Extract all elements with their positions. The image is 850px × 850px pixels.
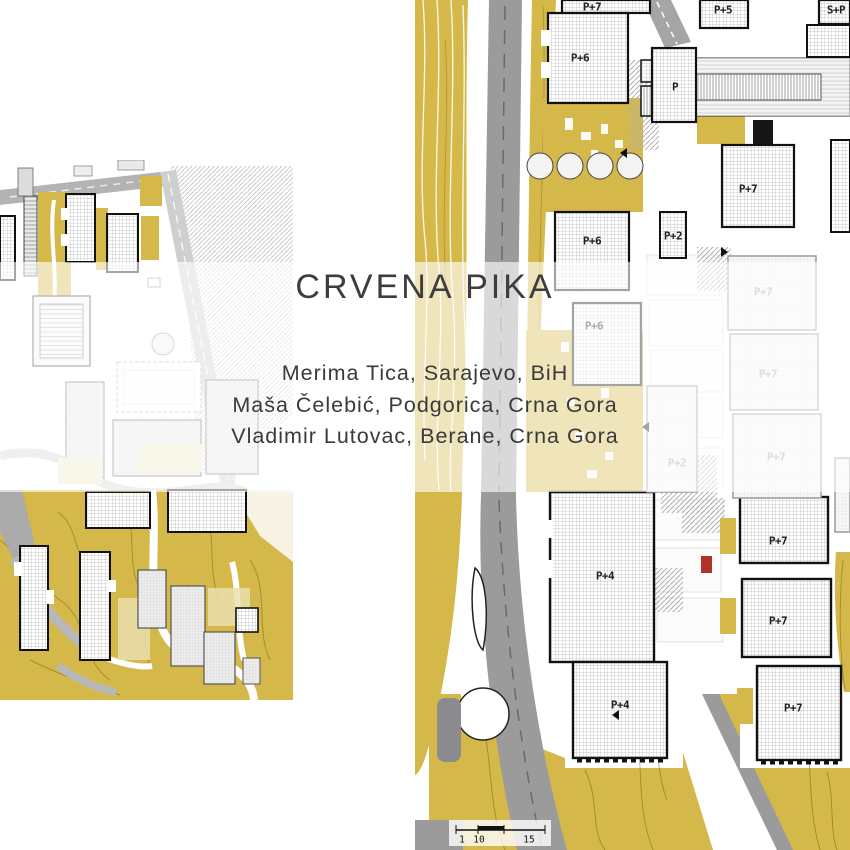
competition-board: P+7P+6PP+5S+PP+7P+2P+6P+6P+7P+7P+7P+2P+4… bbox=[0, 0, 850, 850]
project-title: CRVENA PIKA bbox=[0, 268, 850, 307]
author-line: Maša Čelebić, Podgorica, Crna Gora bbox=[0, 390, 850, 422]
red-dot-marker bbox=[701, 556, 712, 573]
author-list: Merima Tica, Sarajevo, BiH Maša Čelebić,… bbox=[0, 358, 850, 453]
title-overlay: CRVENA PIKA Merima Tica, Sarajevo, BiH M… bbox=[0, 262, 850, 492]
scale-bar bbox=[449, 820, 551, 846]
author-line: Vladimir Lutovac, Berane, Crna Gora bbox=[0, 421, 850, 453]
author-line: Merima Tica, Sarajevo, BiH bbox=[0, 358, 850, 390]
